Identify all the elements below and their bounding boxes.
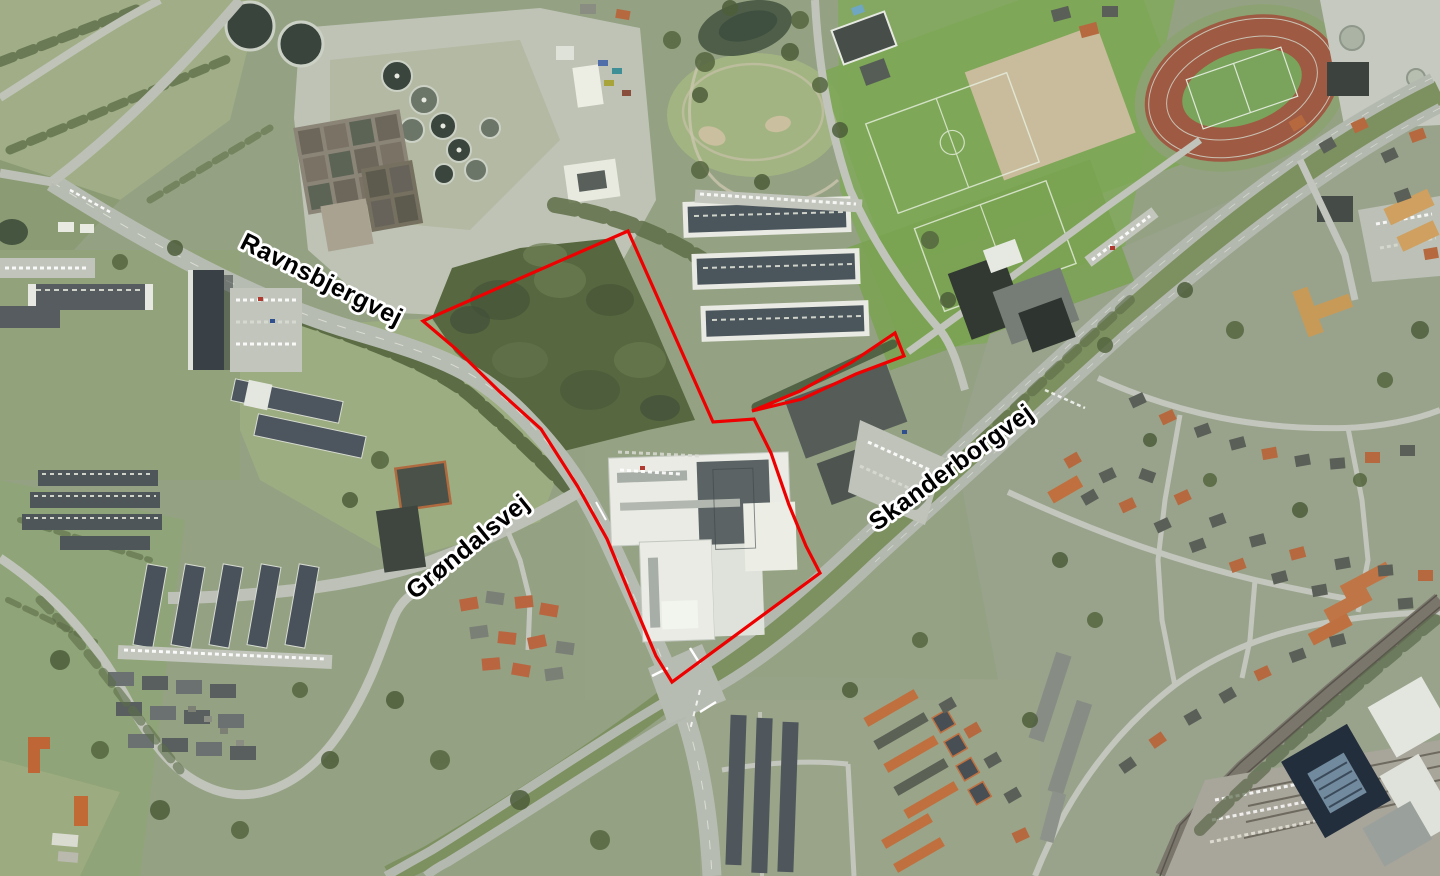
filter-beds <box>361 160 423 232</box>
aerial-map-viewport: Ravnsbjergvej Grøndalsvej Skanderborgvej <box>0 0 1440 876</box>
aerial-map: Ravnsbjergvej Grøndalsvej Skanderborgvej <box>0 0 1440 876</box>
apartment-rows <box>682 196 869 342</box>
